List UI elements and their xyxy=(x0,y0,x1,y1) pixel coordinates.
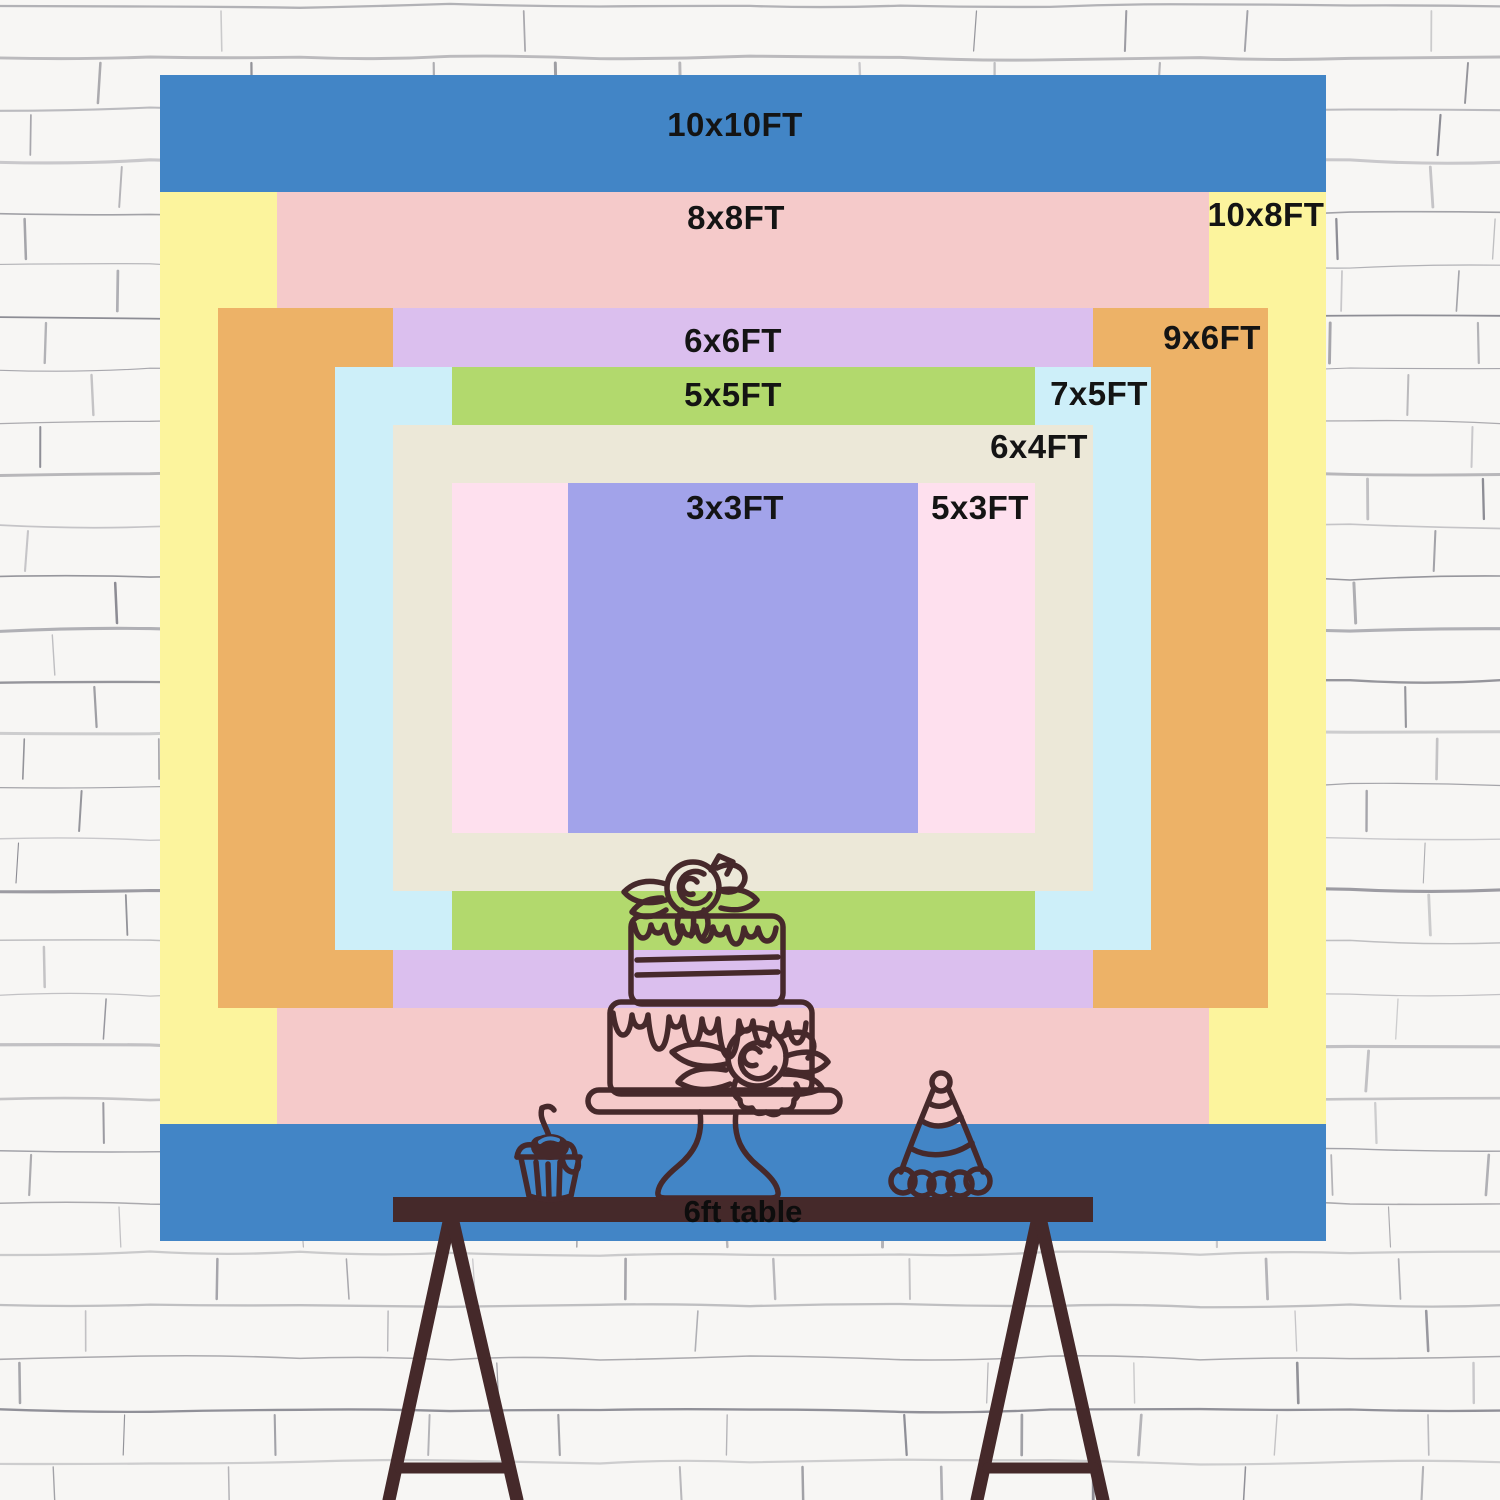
two-tier-cake-illustration xyxy=(588,856,840,1198)
backdrop-size-chart-page: 10x10FT10x8FT8x8FT9x6FT6x6FT7x5FT5x5FT6x… xyxy=(0,0,1500,1500)
illustration-overlay xyxy=(0,0,1500,1500)
table-size-label: 6ft table xyxy=(684,1194,803,1230)
party-hat-illustration xyxy=(891,1073,990,1197)
trestle-table-illustration xyxy=(389,1222,1103,1500)
